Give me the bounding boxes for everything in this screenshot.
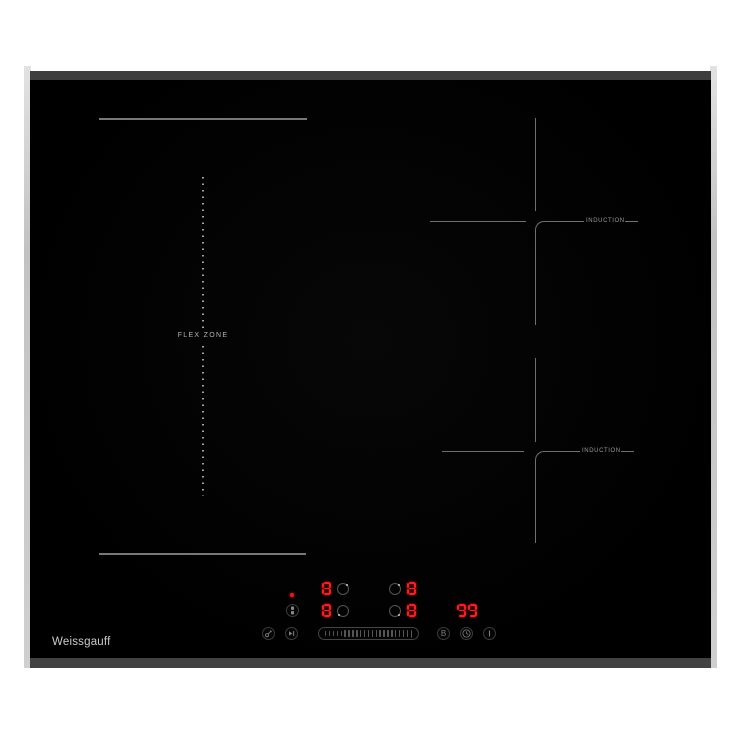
slider-tick [348, 630, 349, 636]
hob-bottom-bezel [30, 658, 711, 668]
seven-segment-digit [468, 604, 477, 617]
slider-tick [337, 631, 338, 637]
induction-top-corner-arc [535, 221, 546, 232]
seven-segment-digit [407, 604, 416, 617]
slider-tick [411, 630, 412, 638]
hob-right-edge [710, 66, 717, 668]
slider-tick [376, 630, 377, 637]
slider-tick [356, 630, 357, 636]
product-photo-induction-hob: FLEX ZONE INDUCTION INDUCTION [0, 0, 740, 740]
flex-front-zone-indicator[interactable] [337, 605, 349, 617]
induction-bottom-cross-left-arm [442, 451, 524, 452]
brand-logo: Weissgauff [52, 636, 110, 648]
flex-zone-bottom-line [99, 553, 306, 555]
flex-bridge-icon [289, 606, 296, 615]
seven-segment-digit [322, 604, 331, 617]
induction-bottom-cross-up-arm [535, 358, 536, 442]
induction-bottom-dash [621, 451, 634, 452]
glass-surface [30, 80, 711, 658]
boost-button-label: B [441, 630, 446, 638]
slider-tick [360, 630, 361, 637]
slider-tick [395, 630, 396, 638]
timer-button[interactable] [460, 627, 473, 640]
slider-tick [403, 630, 404, 638]
slider-tick [364, 630, 365, 637]
induction-bottom-label: INDUCTION [582, 448, 618, 454]
hob-top-bezel [30, 71, 711, 80]
zone-position-dot [398, 584, 400, 586]
induction-top-cross-down-arm [535, 231, 536, 325]
slider-tick [372, 630, 373, 637]
slider-tick [352, 630, 353, 636]
right-front-level-display [407, 604, 416, 617]
induction-top-dash [625, 221, 638, 222]
slider-tick [399, 630, 400, 638]
child-lock-button[interactable] [262, 627, 275, 640]
induction-top-cross-left-arm [430, 221, 526, 222]
power-button[interactable] [483, 627, 496, 640]
slider-tick [341, 631, 342, 637]
power-bar-icon [485, 629, 494, 638]
slider-tick [391, 630, 392, 637]
flex-zone-dotted-divider-upper [202, 177, 204, 328]
seven-segment-digit [322, 582, 331, 595]
slider-tick [379, 630, 380, 637]
pause-icon [287, 629, 296, 638]
slider-tick [333, 631, 334, 637]
induction-bottom-cross-right-arm [545, 451, 580, 452]
flex-front-level-display [322, 604, 331, 617]
slider-tick [387, 630, 388, 637]
slider-tick [329, 631, 330, 637]
flex-rear-level-display [322, 582, 331, 595]
right-rear-zone-indicator[interactable] [389, 583, 401, 595]
clock-icon [462, 629, 471, 638]
induction-bottom-cross-down-arm [535, 461, 536, 543]
induction-top-label: INDUCTION [586, 218, 622, 224]
induction-top-cross-up-arm [535, 118, 536, 211]
right-rear-level-display [407, 582, 416, 595]
key-lock-icon [264, 629, 273, 638]
right-front-zone-indicator[interactable] [389, 605, 401, 617]
induction-bottom-corner-arc [535, 451, 546, 462]
boost-button[interactable]: B [437, 627, 450, 640]
induction-top-cross-right-arm [545, 221, 584, 222]
slider-tick [407, 630, 408, 638]
slider-tick [368, 630, 369, 637]
slider-tick [344, 630, 345, 636]
power-on-led [290, 593, 294, 597]
flex-bridge-button[interactable] [286, 604, 299, 617]
seven-segment-digit [457, 604, 466, 617]
flex-zone-top-line [99, 118, 307, 120]
flex-rear-zone-indicator[interactable] [337, 583, 349, 595]
flex-zone-dotted-divider-lower [202, 346, 204, 496]
zone-position-dot [338, 614, 340, 616]
flex-zone-label: FLEX ZONE [163, 332, 243, 340]
power-slider[interactable] [318, 627, 419, 640]
zone-position-dot [398, 614, 400, 616]
slider-tick [383, 630, 384, 637]
pause-button[interactable] [285, 627, 298, 640]
timer-display [457, 604, 477, 617]
slider-tick [325, 631, 326, 637]
zone-position-dot [346, 584, 348, 586]
seven-segment-digit [407, 582, 416, 595]
